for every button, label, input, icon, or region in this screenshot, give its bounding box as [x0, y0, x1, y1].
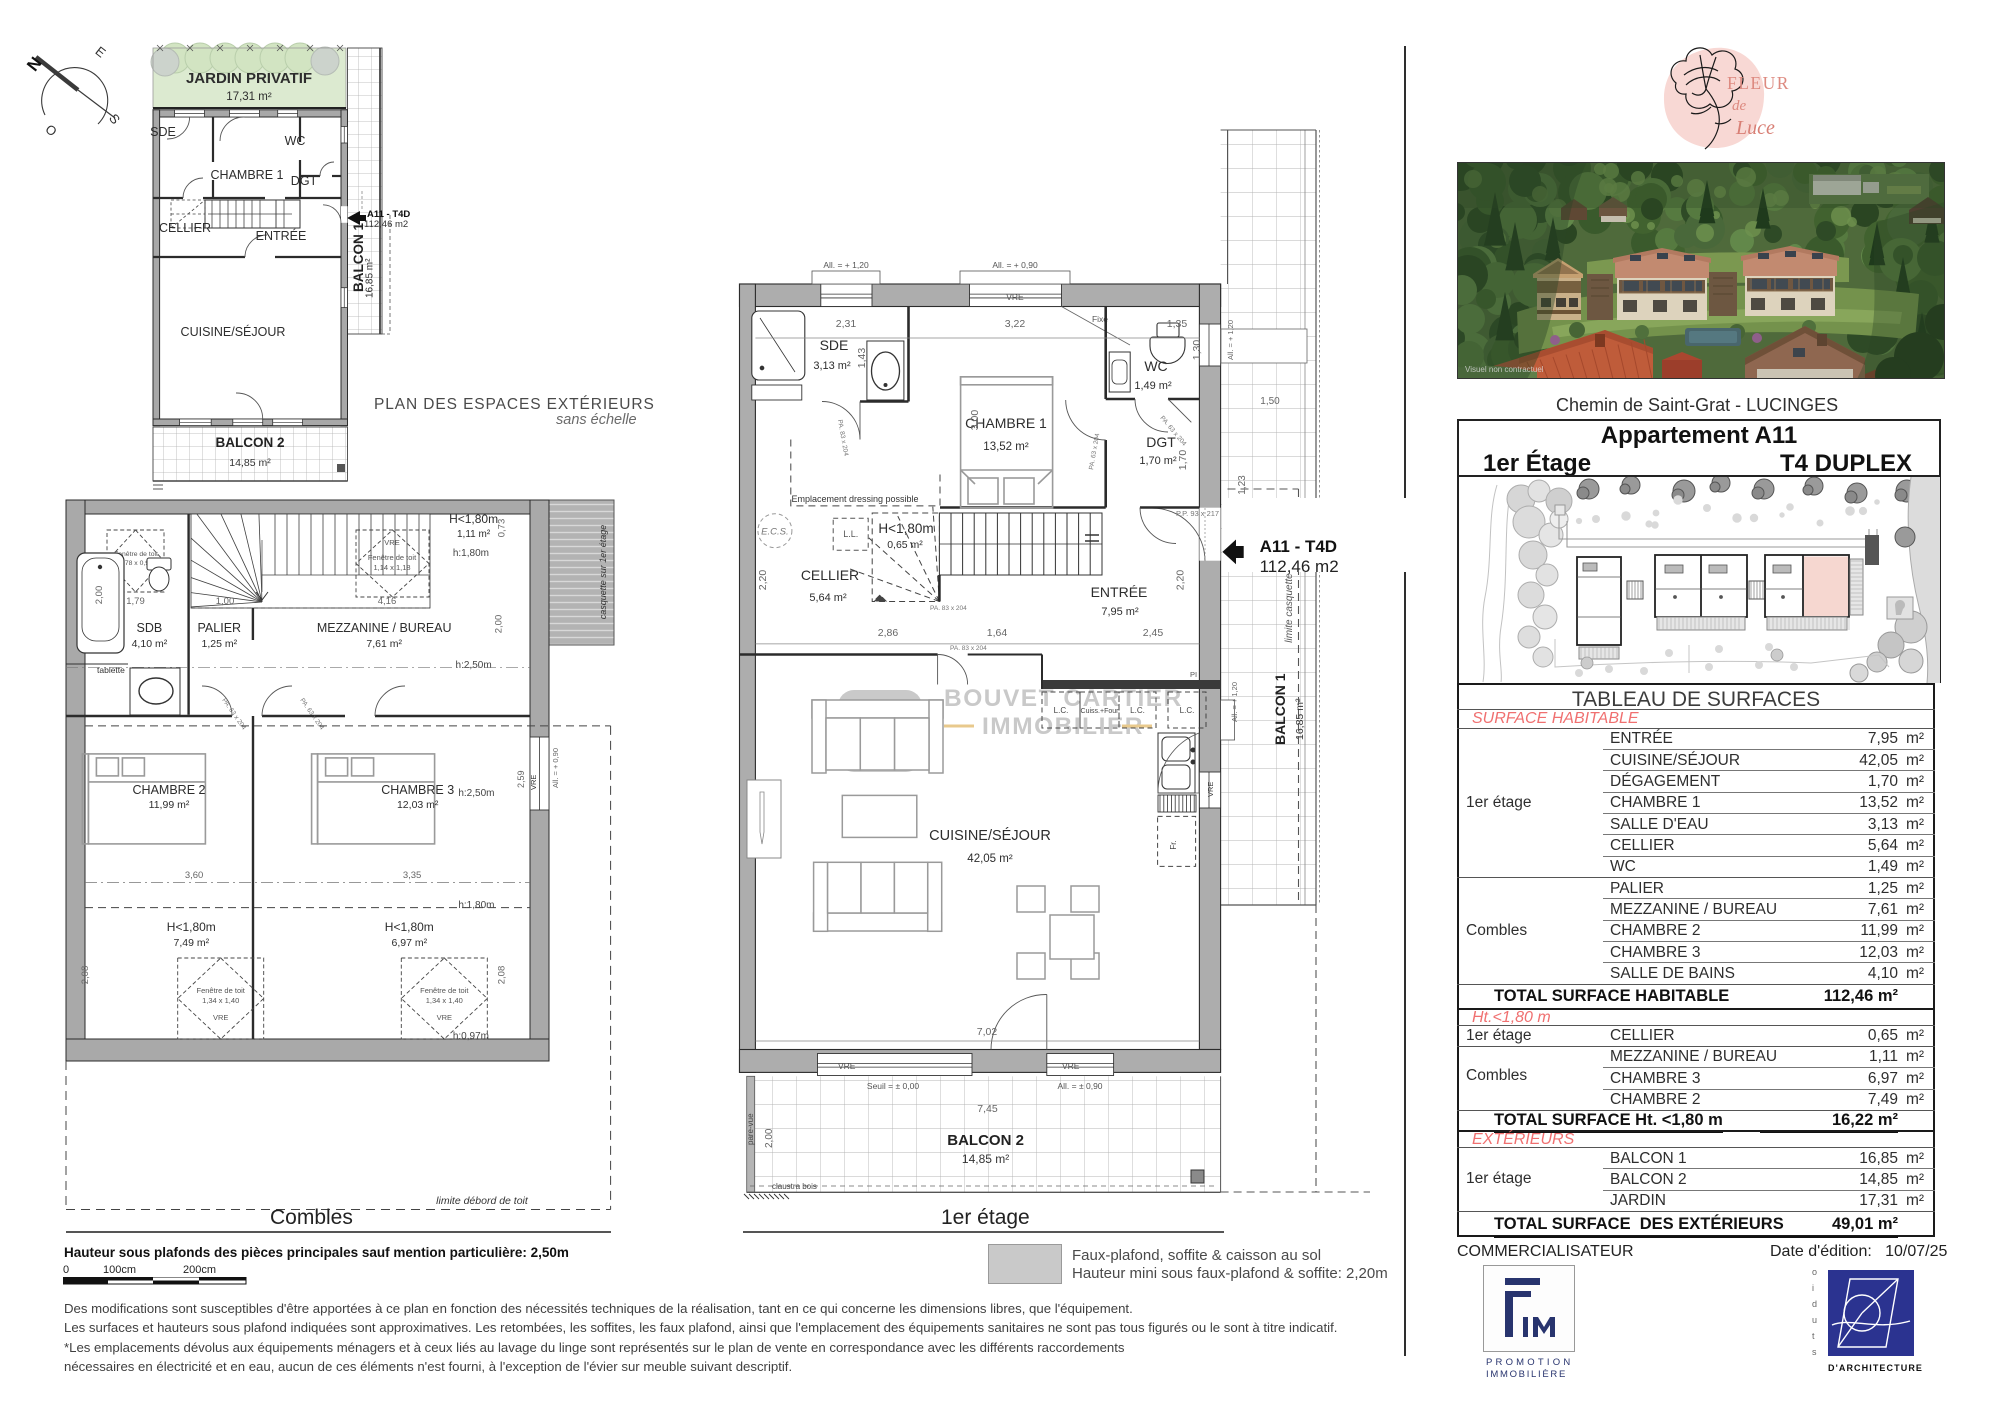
svg-text:0,73: 0,73: [496, 519, 507, 538]
svg-text:2,59: 2,59: [516, 770, 526, 788]
svg-text:ENTRÉE: ENTRÉE: [1091, 584, 1148, 600]
svg-text:7,02: 7,02: [977, 1026, 998, 1038]
svg-text:VRE: VRE: [437, 1013, 452, 1022]
svg-text:2,08: 2,08: [496, 966, 507, 985]
svg-text:H<1,80m: H<1,80m: [167, 920, 216, 934]
svg-text:7,95 m²: 7,95 m²: [1101, 606, 1139, 618]
svg-text:14,85 m²: 14,85 m²: [229, 457, 271, 469]
svg-text:VRE: VRE: [384, 538, 399, 547]
svg-text:13,52 m²: 13,52 m²: [983, 441, 1029, 453]
svg-text:16,85 m²: 16,85 m²: [365, 258, 376, 298]
svg-text:L.C.: L.C.: [1130, 706, 1145, 715]
svg-text:i: i: [1812, 1283, 1814, 1293]
svg-text:Luce: Luce: [1735, 117, 1775, 139]
svg-text:1,50: 1,50: [1260, 396, 1280, 407]
svg-text:112,46 m2: 112,46 m2: [1260, 557, 1339, 576]
svg-text:All. = + 1,20: All. = + 1,20: [823, 260, 869, 270]
svg-text:PA. 83 x 204: PA. 83 x 204: [950, 645, 987, 652]
svg-text:CUISINE/SÉJOUR: CUISINE/SÉJOUR: [181, 324, 286, 339]
svg-text:t: t: [1812, 1331, 1815, 1341]
svg-text:h:2,50m: h:2,50m: [458, 788, 494, 799]
svg-text:claustra bois: claustra bois: [772, 1182, 817, 1191]
svg-text:17,31 m²: 17,31 m²: [226, 91, 272, 103]
svg-text:DGT: DGT: [291, 174, 318, 188]
svg-text:ENTRÉE: ENTRÉE: [256, 228, 307, 243]
svg-text:N: N: [23, 54, 46, 75]
svg-text:Seuil = ± 0,00: Seuil = ± 0,00: [867, 1081, 919, 1091]
svg-text:All. = + 0,90: All. = + 0,90: [992, 260, 1038, 270]
svg-text:D'ARCHITECTURE: D'ARCHITECTURE: [1828, 1363, 1923, 1373]
svg-text:7,45: 7,45: [977, 1103, 998, 1115]
svg-text:VRE: VRE: [213, 1013, 228, 1022]
svg-text:1,70: 1,70: [1177, 450, 1189, 471]
svg-text:MEZZANINE / BUREAU: MEZZANINE / BUREAU: [317, 621, 452, 635]
svg-text:o: o: [1812, 1267, 1817, 1277]
svg-text:tablette: tablette: [97, 665, 125, 675]
svg-text:PROMOTION: PROMOTION: [1486, 1357, 1573, 1368]
svg-text:2,00: 2,00: [764, 1128, 775, 1148]
svg-text:Cuiss.+Four: Cuiss.+Four: [1081, 708, 1120, 715]
svg-text:Fr.: Fr.: [1169, 840, 1178, 849]
svg-text:1,35: 1,35: [1167, 318, 1188, 330]
svg-text:P.P. 93 x 217: P.P. 93 x 217: [1176, 509, 1219, 518]
svg-text:All. = ± 0,90: All. = ± 0,90: [1057, 1081, 1102, 1091]
svg-text:h:1,80m: h:1,80m: [453, 548, 489, 559]
svg-text:IMMOBILIER: IMMOBILIER: [982, 713, 1144, 740]
svg-text:2,00: 2,00: [494, 615, 505, 634]
svg-text:BALCON 2: BALCON 2: [215, 435, 284, 450]
svg-text:1,34 x 1,40: 1,34 x 1,40: [426, 996, 463, 1005]
svg-text:h:2,50m: h:2,50m: [456, 660, 492, 671]
svg-text:12,03 m²: 12,03 m²: [397, 799, 439, 811]
svg-text:7,49 m²: 7,49 m²: [173, 937, 209, 949]
svg-text:Fenêtre de toit: Fenêtre de toit: [368, 553, 417, 562]
svg-text:1,23: 1,23: [1237, 475, 1248, 495]
svg-text:E.C.S.: E.C.S.: [761, 527, 788, 538]
svg-text:VRE: VRE: [1062, 1061, 1080, 1071]
svg-text:SDE: SDE: [820, 337, 849, 353]
svg-text:3,35: 3,35: [403, 870, 422, 881]
svg-text:h:0,97m: h:0,97m: [453, 1031, 489, 1042]
svg-text:14,85 m²: 14,85 m²: [962, 1152, 1009, 1166]
svg-text:PA. 63 x 204: PA. 63 x 204: [1088, 433, 1101, 471]
svg-text:5,64 m²: 5,64 m²: [809, 592, 847, 604]
svg-text:SDB: SDB: [137, 621, 163, 635]
svg-text:1,14 x 1,18: 1,14 x 1,18: [373, 563, 410, 572]
svg-text:2,86: 2,86: [878, 627, 899, 639]
svg-text:CELLIER: CELLIER: [159, 221, 211, 235]
svg-text:BALCON 1: BALCON 1: [1272, 673, 1288, 745]
svg-text:3,13 m²: 3,13 m²: [813, 360, 851, 372]
svg-text:H<1,80m: H<1,80m: [449, 512, 498, 526]
svg-text:O: O: [42, 121, 59, 139]
svg-text:L.C.: L.C.: [1054, 706, 1069, 715]
svg-text:0,65 m²: 0,65 m²: [887, 539, 923, 551]
svg-text:3,22: 3,22: [1005, 318, 1026, 330]
svg-text:Fenêtre de toit: Fenêtre de toit: [420, 986, 469, 995]
svg-text:PA. 83 x 204: PA. 83 x 204: [930, 605, 967, 612]
svg-text:WC: WC: [285, 134, 306, 148]
svg-text:limite casquette: limite casquette: [1284, 573, 1295, 643]
svg-text:VRE: VRE: [1206, 782, 1215, 797]
svg-text:1,43: 1,43: [856, 348, 868, 369]
svg-text:1,34 x 1,40: 1,34 x 1,40: [202, 996, 239, 1005]
svg-text:IMMOBILIÈRE: IMMOBILIÈRE: [1486, 1369, 1567, 1380]
svg-text:s: s: [1812, 1347, 1817, 1357]
svg-text:VRE: VRE: [838, 1061, 856, 1071]
svg-text:A11 - T4D: A11 - T4D: [1260, 537, 1337, 556]
svg-text:JARDIN PRIVATIF: JARDIN PRIVATIF: [186, 70, 312, 87]
svg-text:1,70 m²: 1,70 m²: [1139, 455, 1177, 467]
svg-text:2,45: 2,45: [1143, 627, 1164, 639]
svg-text:CELLIER: CELLIER: [801, 567, 859, 583]
svg-text:All. = + 1,20: All. = + 1,20: [1226, 320, 1235, 360]
svg-text:PI: PI: [1190, 670, 1197, 679]
svg-text:2,20: 2,20: [757, 570, 769, 591]
svg-text:h:1,80m: h:1,80m: [458, 900, 494, 911]
svg-text:L.L.: L.L.: [843, 529, 858, 539]
svg-text:Emplacement dressing possible: Emplacement dressing possible: [791, 494, 918, 504]
svg-text:limite débord de toit: limite débord de toit: [436, 1195, 529, 1207]
svg-text:3,60: 3,60: [185, 870, 204, 881]
svg-text:2,20: 2,20: [1175, 570, 1187, 591]
svg-text:FLEUR: FLEUR: [1727, 73, 1790, 93]
svg-text:1,49 m²: 1,49 m²: [1134, 380, 1172, 392]
svg-text:PA. 83 x 204: PA. 83 x 204: [836, 419, 849, 457]
svg-text:Fenêtre de toit: Fenêtre de toit: [197, 986, 246, 995]
svg-text:VRE: VRE: [1006, 292, 1024, 302]
svg-text:1,00: 1,00: [216, 596, 235, 607]
svg-text:2,00: 2,00: [94, 586, 105, 605]
svg-text:11,99 m²: 11,99 m²: [149, 799, 190, 811]
svg-text:VRE: VRE: [529, 775, 538, 790]
svg-text:All. = + 0,90: All. = + 0,90: [551, 748, 560, 788]
svg-text:3,00: 3,00: [969, 410, 981, 431]
svg-text:1,79: 1,79: [126, 596, 145, 607]
svg-text:PALIER: PALIER: [198, 621, 242, 635]
svg-text:2,08: 2,08: [80, 966, 91, 985]
svg-text:SDE: SDE: [150, 125, 176, 139]
svg-text:112,46 m2: 112,46 m2: [364, 219, 408, 230]
svg-text:7,61 m²: 7,61 m²: [366, 638, 402, 650]
svg-text:BALCON 2: BALCON 2: [947, 1132, 1024, 1149]
svg-text:CHAMBRE 3: CHAMBRE 3: [381, 783, 454, 797]
svg-text:6,97 m²: 6,97 m²: [391, 937, 427, 949]
svg-text:1,11 m²: 1,11 m²: [457, 529, 491, 540]
svg-text:1,64: 1,64: [987, 627, 1008, 639]
svg-text:de: de: [1732, 98, 1747, 114]
svg-text:Visuel non contractuel: Visuel non contractuel: [1465, 365, 1544, 374]
svg-text:4,10 m²: 4,10 m²: [132, 638, 168, 650]
svg-text:H<1,80m: H<1,80m: [878, 521, 933, 536]
svg-text:WC: WC: [1144, 358, 1167, 374]
svg-text:pare-vue: pare-vue: [746, 1113, 755, 1145]
svg-text:2,31: 2,31: [836, 318, 857, 330]
svg-text:L.C.: L.C.: [1180, 706, 1195, 715]
svg-text:H<1,80m: H<1,80m: [385, 920, 434, 934]
svg-text:casquette sur 1er étage: casquette sur 1er étage: [598, 525, 608, 620]
svg-text:E: E: [93, 43, 109, 60]
svg-text:16,85 m²: 16,85 m²: [1294, 698, 1306, 740]
svg-text:42,05 m²: 42,05 m²: [967, 853, 1013, 865]
svg-text:CUISINE/SÉJOUR: CUISINE/SÉJOUR: [929, 827, 1051, 844]
svg-text:4,16: 4,16: [378, 596, 397, 607]
svg-text:CHAMBRE 2: CHAMBRE 2: [133, 783, 206, 797]
svg-text:d: d: [1812, 1299, 1817, 1309]
svg-text:u: u: [1812, 1315, 1817, 1325]
svg-text:CHAMBRE 1: CHAMBRE 1: [211, 168, 284, 182]
svg-text:DGT: DGT: [1146, 434, 1176, 450]
svg-text:1,30: 1,30: [1191, 340, 1203, 361]
svg-text:All. = + 1,20: All. = + 1,20: [1230, 682, 1239, 722]
svg-text:1,25 m²: 1,25 m²: [201, 638, 237, 650]
